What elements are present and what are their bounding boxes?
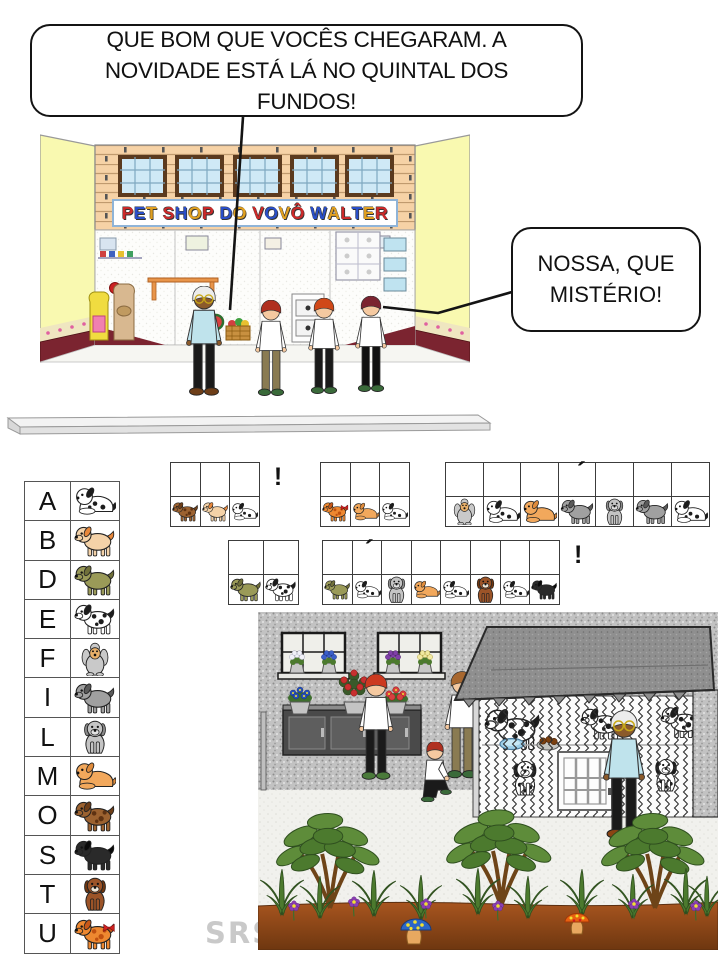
dog-cell: [229, 496, 260, 527]
dog-cell: [320, 496, 351, 527]
key-row-U: U: [24, 913, 120, 954]
dog-cell: [558, 496, 597, 527]
dog-image-A: [485, 498, 520, 525]
dog-cell: [379, 496, 410, 527]
sign-letter: V: [252, 203, 264, 224]
answer-cell: [170, 462, 201, 497]
answer-cell: [229, 462, 260, 497]
sign-letter: O: [188, 203, 202, 224]
pet-shop-illustration: [40, 126, 470, 408]
key-row-E: E: [24, 599, 120, 640]
exclamation-mark: !: [274, 463, 282, 492]
answer-cell: [529, 540, 560, 575]
sign-letter: R: [375, 203, 388, 224]
dog-image-I: [635, 498, 670, 525]
fish-tanks: [384, 238, 406, 291]
dog-cell: [322, 574, 353, 605]
sign-letter: T: [352, 203, 363, 224]
dog-image-O: [74, 799, 116, 833]
dog-image-L: [383, 576, 410, 603]
dog-image-F: [74, 642, 116, 676]
key-dog-cell: [70, 756, 120, 797]
dog-image-A: [442, 576, 469, 603]
answer-cell: [322, 540, 353, 575]
dog-cell: [500, 574, 531, 605]
sign-letter: S: [163, 203, 175, 224]
dog-image-A: [673, 498, 708, 525]
flower-pot-blue: [288, 687, 312, 714]
dog-image-M: [413, 576, 440, 603]
answer-cell: [520, 462, 559, 497]
accent-mark: ´: [365, 535, 374, 566]
key-dog-cell: [70, 520, 120, 561]
sign-letter: Ô: [291, 203, 305, 224]
dog-image-M: [352, 498, 379, 525]
sign-letter: A: [327, 203, 340, 224]
dog-cell: [671, 496, 710, 527]
key-dog-cell: [70, 874, 120, 915]
key-letter: O: [24, 795, 71, 836]
sign-letter: O: [233, 203, 247, 224]
answer-cell: [320, 462, 351, 497]
key-dog-cell: [70, 560, 120, 601]
accent-mark: ´: [577, 457, 586, 488]
sign-letter: T: [146, 203, 157, 224]
sign-letter: H: [175, 203, 188, 224]
key-letter: S: [24, 835, 71, 876]
key-letter: L: [24, 717, 71, 758]
key-dog-cell: [70, 835, 120, 876]
dog-cell: [228, 574, 264, 605]
answer-cell: [381, 540, 412, 575]
key-row-F: F: [24, 638, 120, 679]
sign-letter: P: [202, 203, 214, 224]
sign-letter: D: [220, 203, 233, 224]
dog-image-E: [265, 576, 297, 603]
dog-cell: [200, 496, 231, 527]
dog-image-E: [74, 602, 116, 636]
dog-cell: [170, 496, 201, 527]
key-dog-cell: [70, 481, 120, 522]
dog-cell: [529, 574, 560, 605]
word-grid-4: [228, 540, 299, 605]
dog-image-F: [447, 498, 482, 525]
dog-cell: [445, 496, 484, 527]
word-grid-3: ´: [445, 462, 710, 527]
key-letter: D: [24, 560, 71, 601]
answer-cell: [379, 462, 410, 497]
sign-letter: E: [363, 203, 375, 224]
dog-image-L: [597, 498, 632, 525]
backyard-scene: [258, 612, 718, 950]
dog-image-A: [74, 484, 116, 518]
key-letter: I: [24, 677, 71, 718]
key-row-M: M: [24, 756, 120, 797]
dog-image-O: [172, 498, 199, 525]
sign-letter: E: [134, 203, 146, 224]
key-row-I: I: [24, 677, 120, 718]
basket: [226, 318, 250, 340]
shop-floor: [40, 345, 470, 362]
pet-shop-sign-text: PET SHOP DO VOVÔ WALTER: [122, 203, 389, 224]
answer-cell: [470, 540, 501, 575]
key-letter: E: [24, 599, 71, 640]
dog-image-I: [560, 498, 595, 525]
word-grid-1: !: [170, 462, 260, 527]
answer-cell: [595, 462, 634, 497]
sign-letter: L: [341, 203, 352, 224]
word-grid-2: [320, 462, 410, 527]
dog-cell: [633, 496, 672, 527]
answer-cell: [500, 540, 531, 575]
key-dog-cell: [70, 677, 120, 718]
answer-cell: [633, 462, 672, 497]
speech-bubble-grandpa-text: QUE BOM QUE VOCÊS CHEGARAM. A NOVIDADE E…: [56, 24, 557, 117]
key-letter: U: [24, 913, 71, 954]
sign-letter: V: [279, 203, 291, 224]
dog-cell: [520, 496, 559, 527]
dog-image-A: [502, 576, 529, 603]
dog-cell: [381, 574, 412, 605]
dog-cell: [411, 574, 442, 605]
dog-image-D: [324, 576, 351, 603]
speech-bubble-boy: NOSSA, QUE MISTÉRIO!: [511, 227, 701, 332]
sign-letter: P: [122, 203, 134, 224]
key-dog-cell: [70, 795, 120, 836]
sidewalk: [8, 415, 490, 434]
key-letter: B: [24, 520, 71, 561]
upper-windows: [120, 157, 392, 195]
key-dog-cell: [70, 913, 120, 954]
key-dog-cell: [70, 717, 120, 758]
answer-cell: [350, 462, 381, 497]
dog-image-M: [522, 498, 557, 525]
worksheet-page: QUE BOM QUE VOCÊS CHEGARAM. A NOVIDADE E…: [0, 0, 720, 960]
dog-image-S: [74, 838, 116, 872]
key-letter: M: [24, 756, 71, 797]
key-row-T: T: [24, 874, 120, 915]
dog-image-L: [74, 720, 116, 754]
dog-image-U: [322, 498, 349, 525]
answer-cell: [445, 462, 484, 497]
exclamation-mark: !: [574, 541, 582, 570]
dog-cell: [352, 574, 383, 605]
dog-image-B: [74, 524, 116, 558]
word-grid-5: ´!: [322, 540, 560, 605]
key-row-A: A: [24, 481, 120, 522]
dog-cell: [440, 574, 471, 605]
kennel: [455, 627, 718, 817]
kennel-roof: [455, 627, 714, 707]
dog-cell: [350, 496, 381, 527]
dog-image-B: [202, 498, 229, 525]
answer-cell: [200, 462, 231, 497]
key-dog-cell: [70, 638, 120, 679]
answer-cell: [483, 462, 522, 497]
pet-shop-sign: PET SHOP DO VOVÔ WALTER: [112, 199, 398, 227]
key-row-L: L: [24, 717, 120, 758]
dog-image-S: [531, 576, 558, 603]
dog-image-T: [472, 576, 499, 603]
sign-letter: W: [310, 203, 327, 224]
key-row-B: B: [24, 520, 120, 561]
backyard-window-2: [374, 633, 445, 679]
key-row-D: D: [24, 560, 120, 601]
dog-image-A: [354, 576, 381, 603]
dog-image-I: [74, 681, 116, 715]
dog-cell: [470, 574, 501, 605]
backyard-window-1: [278, 633, 349, 679]
answer-cell: [671, 462, 710, 497]
dog-image-A: [381, 498, 408, 525]
dog-image-D: [74, 563, 116, 597]
dog-image-U: [74, 917, 116, 951]
dog-image-A: [231, 498, 258, 525]
speech-bubble-grandpa: QUE BOM QUE VOCÊS CHEGARAM. A NOVIDADE E…: [30, 24, 583, 117]
dog-cell: [595, 496, 634, 527]
dog-image-D: [230, 576, 262, 603]
dog-cell: [263, 574, 299, 605]
key-row-S: S: [24, 835, 120, 876]
key-letter: A: [24, 481, 71, 522]
dog-image-M: [74, 759, 116, 793]
dog-image-T: [74, 877, 116, 911]
letter-dog-key: ABDEFILMOSTU: [24, 481, 120, 954]
sign-letter: O: [265, 203, 279, 224]
dog-cell: [483, 496, 522, 527]
key-row-O: O: [24, 795, 120, 836]
answer-cell: [440, 540, 471, 575]
key-letter: T: [24, 874, 71, 915]
answer-cell: [411, 540, 442, 575]
key-dog-cell: [70, 599, 120, 640]
kennel-gate: [558, 752, 614, 810]
speech-bubble-boy-text: NOSSA, QUE MISTÉRIO!: [527, 249, 685, 310]
answer-cell: [228, 540, 264, 575]
key-letter: F: [24, 638, 71, 679]
answer-cell: [263, 540, 299, 575]
